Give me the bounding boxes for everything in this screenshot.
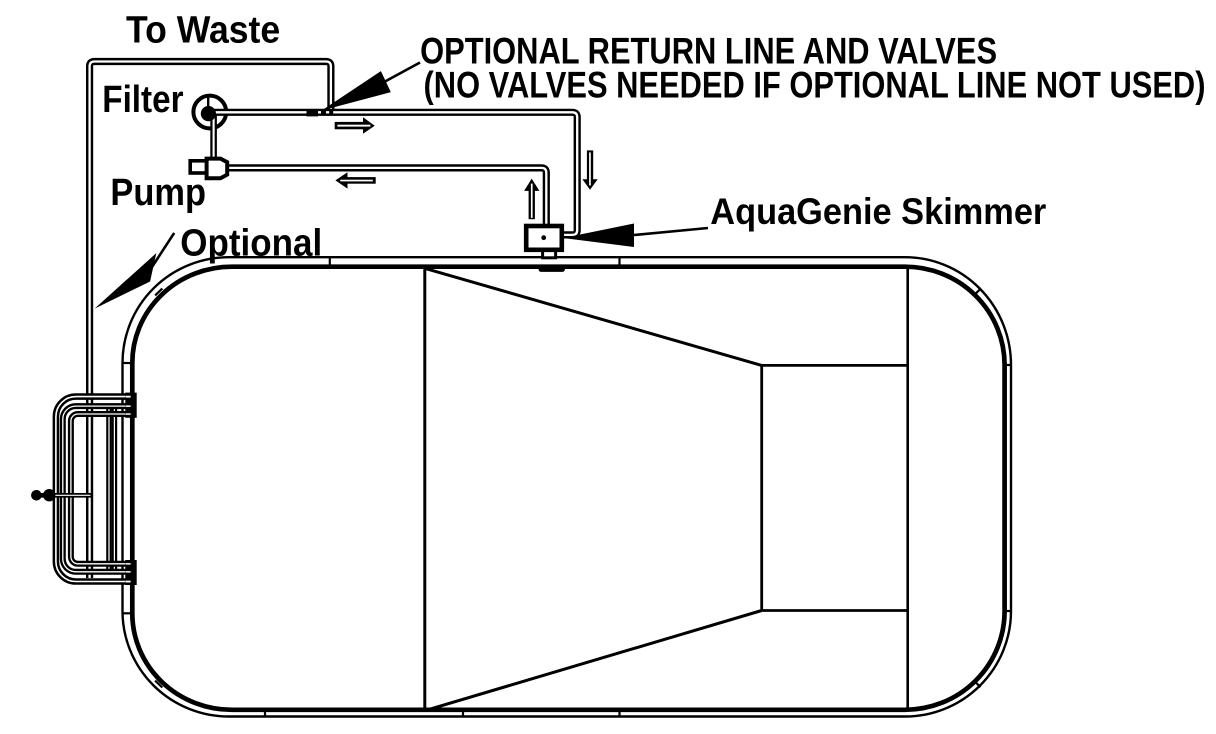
svg-text:Filter: Filter: [102, 79, 183, 121]
svg-text:To Waste: To Waste: [126, 10, 280, 52]
svg-text:AquaGenie Skimmer: AquaGenie Skimmer: [710, 191, 1046, 232]
svg-text:Optional: Optional: [180, 223, 322, 265]
svg-text:Pump: Pump: [110, 171, 206, 214]
svg-text:(NO VALVES NEEDED IF OPTIONAL: (NO VALVES NEEDED IF OPTIONAL LINE NOT U…: [424, 64, 1206, 105]
